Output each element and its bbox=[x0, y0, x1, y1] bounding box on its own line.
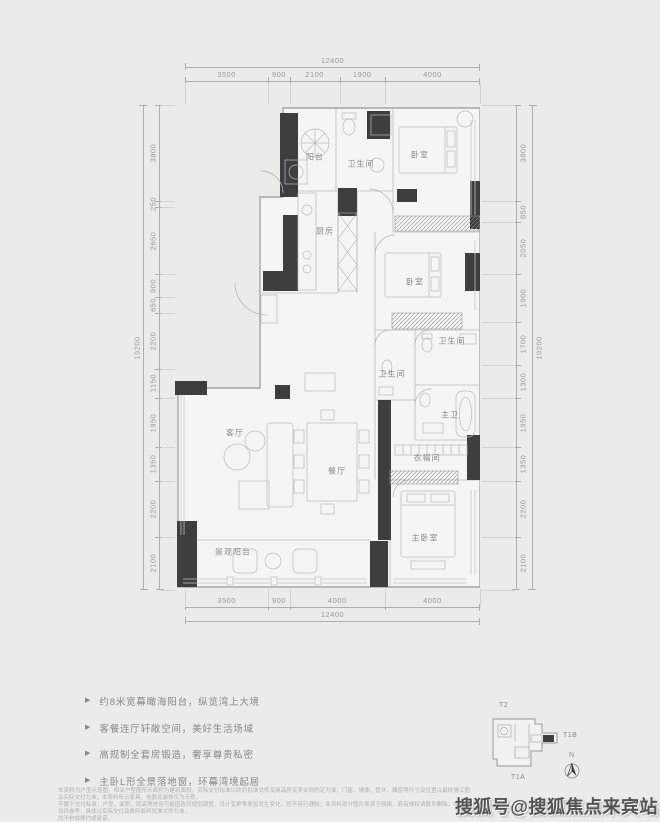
extension-line bbox=[482, 481, 515, 482]
dim-left-segments: 3800250265090065022001150195013502200210… bbox=[147, 105, 160, 590]
compass-icon bbox=[564, 761, 580, 779]
extension-line bbox=[268, 83, 269, 104]
dim-segment: 1950 bbox=[147, 398, 160, 447]
floorplan-drawing bbox=[175, 105, 480, 590]
dim-value: 4000 bbox=[423, 70, 442, 79]
dim-value: 3500 bbox=[217, 70, 236, 79]
compass-north-label: N bbox=[569, 752, 575, 759]
extension-line bbox=[340, 83, 341, 104]
extension-line bbox=[290, 589, 291, 607]
dim-segment: 3800 bbox=[147, 105, 160, 201]
extension-line bbox=[161, 369, 175, 370]
dim-value: 1150 bbox=[149, 374, 158, 392]
dim-segment: 2200 bbox=[516, 481, 529, 537]
extension-line bbox=[161, 537, 175, 538]
extension-line bbox=[385, 589, 386, 607]
room-label-bedroom-middle: 卧室 bbox=[406, 277, 424, 288]
extension-line bbox=[482, 537, 515, 538]
dim-value: 2200 bbox=[519, 500, 528, 519]
dim-segment: 900 bbox=[147, 274, 160, 297]
unit-outline bbox=[178, 108, 480, 587]
dim-segment: 650 bbox=[147, 297, 160, 313]
dim-segment: 1300 bbox=[516, 365, 529, 398]
dim-value: 12400 bbox=[321, 610, 344, 619]
dim-value: 2050 bbox=[519, 239, 528, 258]
room-label-view-balcony: 景观阳台 bbox=[215, 547, 251, 558]
extension-line bbox=[185, 589, 186, 607]
keyplan: T2 T1B T1A N bbox=[487, 702, 622, 792]
extension-line bbox=[161, 297, 175, 298]
bullet-icon: ▶ bbox=[85, 696, 90, 704]
dim-value: 2100 bbox=[149, 554, 158, 573]
dim-value: 1950 bbox=[519, 413, 528, 432]
dim-value: 1900 bbox=[519, 289, 528, 308]
extension-line bbox=[482, 322, 515, 323]
dim-segment: 1350 bbox=[516, 447, 529, 481]
keyplan-label-t1b: T1B bbox=[563, 732, 577, 739]
disclaimer-text: 本资料为户型示意图，相关户型图所示面积为建筑面积，实际交付标准以政府批准文件及商… bbox=[58, 788, 470, 822]
dim-segment: 19200 bbox=[131, 105, 144, 590]
extension-line bbox=[482, 365, 515, 366]
dim-segment: 2100 bbox=[147, 537, 160, 590]
extension-line bbox=[482, 398, 515, 399]
extension-line bbox=[482, 447, 515, 448]
room-label-kitchen: 厨房 bbox=[316, 226, 334, 237]
dim-value: 1700 bbox=[519, 334, 528, 353]
dim-value: 1950 bbox=[149, 413, 158, 432]
bullet-icon: ▶ bbox=[85, 749, 90, 757]
dim-value: 2650 bbox=[149, 231, 158, 250]
dim-segment: 2050 bbox=[516, 222, 529, 274]
dim-value: 2100 bbox=[305, 70, 324, 79]
dim-right-overall: 19200 bbox=[532, 105, 545, 590]
feature-text: 客餐连厅轩敞空间，美好生活场域 bbox=[99, 721, 254, 735]
room-label-master-bath: 主卫 bbox=[441, 410, 459, 421]
room-label-balcony: 阳台 bbox=[306, 152, 324, 163]
dim-value: 2100 bbox=[519, 554, 528, 573]
dim-segment: 1350 bbox=[147, 447, 160, 481]
disclaimer-line: 均不构成要约或承诺。 bbox=[58, 816, 470, 822]
dim-segment: 900 bbox=[268, 70, 289, 82]
dim-segment: 1900 bbox=[516, 274, 529, 322]
extension-line bbox=[290, 83, 291, 104]
room-label-dining-room: 餐厅 bbox=[328, 466, 346, 477]
room-label-bathroom-small: 卫生间 bbox=[379, 369, 406, 380]
dim-segment: 19200 bbox=[532, 105, 545, 590]
feature-text: 约8米宽幕瞰海阳台，纵览湾上大境 bbox=[99, 694, 260, 708]
watermark: 搜狐号@搜狐焦点来宾站 bbox=[455, 793, 658, 819]
highlighted-unit bbox=[543, 735, 554, 742]
dim-value: 900 bbox=[272, 70, 286, 79]
dim-segment: 2200 bbox=[147, 481, 160, 537]
dim-value: 19200 bbox=[535, 336, 544, 359]
extension-line bbox=[161, 274, 175, 275]
floorplan-page: 12400 3500900210019004000 35009004000400… bbox=[0, 0, 660, 822]
disclaimer-line: 不属于交付标准；户型、面积、层高等信息可能因政府规划调整、设计变更等原因发生变化… bbox=[58, 802, 470, 816]
dim-value: 1350 bbox=[149, 455, 158, 474]
feature-item: ▶ 客餐连厅轩敞空间，美好生活场域 bbox=[85, 721, 405, 735]
dim-segment: 3500 bbox=[185, 70, 268, 82]
extension-line bbox=[482, 274, 515, 275]
dim-right-segments: 380085020501900170013001950135022002100 bbox=[516, 105, 529, 590]
dim-bottom-overall: 12400 bbox=[185, 610, 480, 622]
dim-segment: 2650 bbox=[147, 207, 160, 274]
extension-line bbox=[161, 447, 175, 448]
dim-segment: 1900 bbox=[340, 70, 385, 82]
dim-top-overall: 12400 bbox=[185, 56, 480, 68]
extension-line bbox=[185, 83, 186, 104]
feature-text: 高规制全套房锻造，奢享尊贵私密 bbox=[99, 747, 254, 761]
room-label-bathroom-right: 卫生间 bbox=[439, 336, 466, 347]
feature-text: 主卧L形全景落地窗，环幕湾境起居 bbox=[99, 774, 260, 788]
extension-line bbox=[482, 222, 515, 223]
disclaimer-line: 本资料为户型示意图，相关户型图所示面积为建筑面积，实际交付标准以政府批准文件及商… bbox=[58, 788, 470, 802]
feature-item: ▶ 约8米宽幕瞰海阳台，纵览湾上大境 bbox=[85, 694, 405, 708]
extension-line bbox=[161, 590, 175, 591]
dim-segment: 4000 bbox=[385, 70, 480, 82]
room-label-master-bedroom: 主卧室 bbox=[412, 533, 439, 544]
extension-lines-bottom bbox=[185, 589, 480, 607]
extension-line bbox=[161, 201, 175, 202]
extension-line bbox=[482, 590, 515, 591]
extension-line bbox=[482, 201, 515, 202]
dim-value: 1300 bbox=[519, 372, 528, 391]
bullet-icon: ▶ bbox=[85, 776, 90, 784]
room-label-bathroom-top: 卫生间 bbox=[348, 159, 375, 170]
dim-value: 850 bbox=[519, 205, 528, 219]
room-label-bedroom-top: 卧室 bbox=[411, 150, 429, 161]
dim-value: 3800 bbox=[149, 144, 158, 163]
dim-segment: 2100 bbox=[290, 70, 340, 82]
dim-segment: 2100 bbox=[516, 537, 529, 590]
extension-line bbox=[482, 105, 515, 106]
dim-segment: 1950 bbox=[516, 398, 529, 447]
extension-line bbox=[161, 207, 175, 208]
dim-value: 1350 bbox=[519, 455, 528, 474]
dim-segment: 1700 bbox=[516, 322, 529, 365]
room-label-living-room: 客厅 bbox=[226, 428, 244, 439]
dim-value: 900 bbox=[149, 279, 158, 293]
dim-value: 650 bbox=[149, 298, 158, 312]
feature-item: ▶ 高规制全套房锻造，奢享尊贵私密 bbox=[85, 747, 405, 761]
extension-line bbox=[268, 589, 269, 607]
extension-lines-right bbox=[482, 105, 515, 590]
dim-segment: 12400 bbox=[185, 610, 480, 622]
extension-line bbox=[161, 481, 175, 482]
floorplan: 阳台 卫生间 卧室 厨房 卧室 卫生间 卫生间 主卫 客厅 餐厅 衣帽间 主卧室… bbox=[175, 105, 480, 590]
extension-line bbox=[385, 83, 386, 104]
bullet-icon: ▶ bbox=[85, 723, 90, 731]
extension-line bbox=[161, 313, 175, 314]
dim-value: 1900 bbox=[353, 70, 372, 79]
extension-lines-left bbox=[161, 105, 175, 590]
keyplan-label-t2: T2 bbox=[499, 702, 508, 709]
keyplan-drawing bbox=[489, 711, 561, 773]
dim-segment: 850 bbox=[516, 201, 529, 222]
dim-value: 2200 bbox=[149, 500, 158, 519]
dim-value: 12400 bbox=[321, 56, 344, 65]
extension-line bbox=[161, 105, 175, 106]
dim-value: 3800 bbox=[519, 144, 528, 163]
keyplan-label-t1a: T1A bbox=[511, 774, 525, 781]
dim-segment: 12400 bbox=[185, 56, 480, 68]
feature-list: ▶ 约8米宽幕瞰海阳台，纵览湾上大境 ▶ 客餐连厅轩敞空间，美好生活场域 ▶ 高… bbox=[85, 694, 405, 800]
extension-line bbox=[480, 83, 481, 104]
room-label-cloakroom: 衣帽间 bbox=[414, 453, 441, 464]
dim-segment: 1150 bbox=[147, 369, 160, 398]
dim-segment: 2200 bbox=[147, 313, 160, 369]
dim-segment: 3800 bbox=[516, 105, 529, 201]
dim-value: 19200 bbox=[133, 336, 142, 359]
extension-line bbox=[161, 398, 175, 399]
extension-lines-top bbox=[185, 83, 480, 104]
dim-value: 2200 bbox=[149, 332, 158, 351]
dim-left-overall: 19200 bbox=[131, 105, 144, 590]
dim-top-segments: 3500900210019004000 bbox=[185, 70, 480, 82]
extension-line bbox=[480, 589, 481, 607]
feature-item: ▶ 主卧L形全景落地窗，环幕湾境起居 bbox=[85, 774, 405, 788]
